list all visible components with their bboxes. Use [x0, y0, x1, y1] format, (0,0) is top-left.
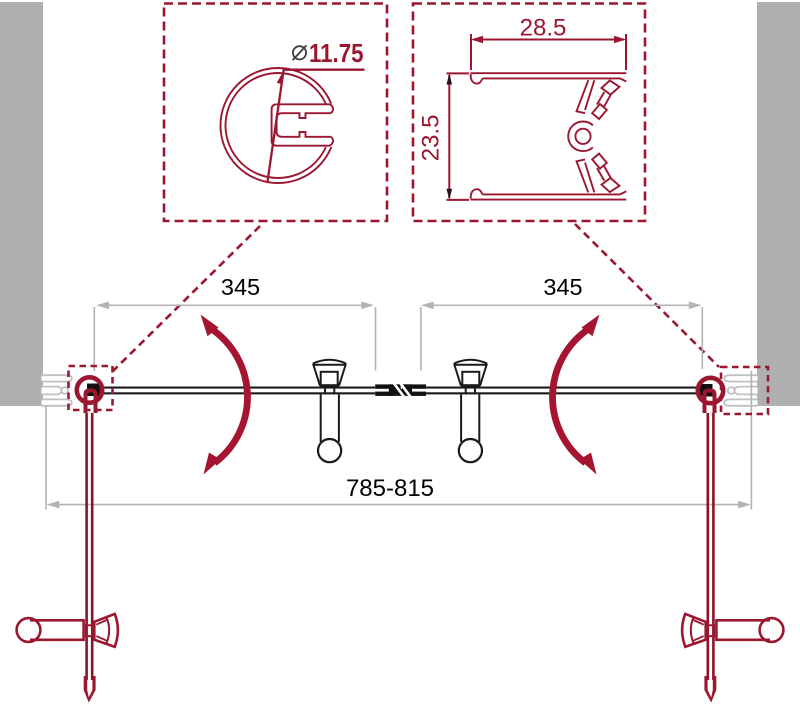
svg-text:28.5: 28.5	[520, 15, 567, 42]
svg-text:23.5: 23.5	[418, 115, 445, 162]
svg-text:345: 345	[221, 274, 260, 300]
svg-text:11.75: 11.75	[309, 38, 364, 68]
svg-text:345: 345	[543, 274, 582, 300]
svg-text:785-815: 785-815	[346, 475, 434, 502]
